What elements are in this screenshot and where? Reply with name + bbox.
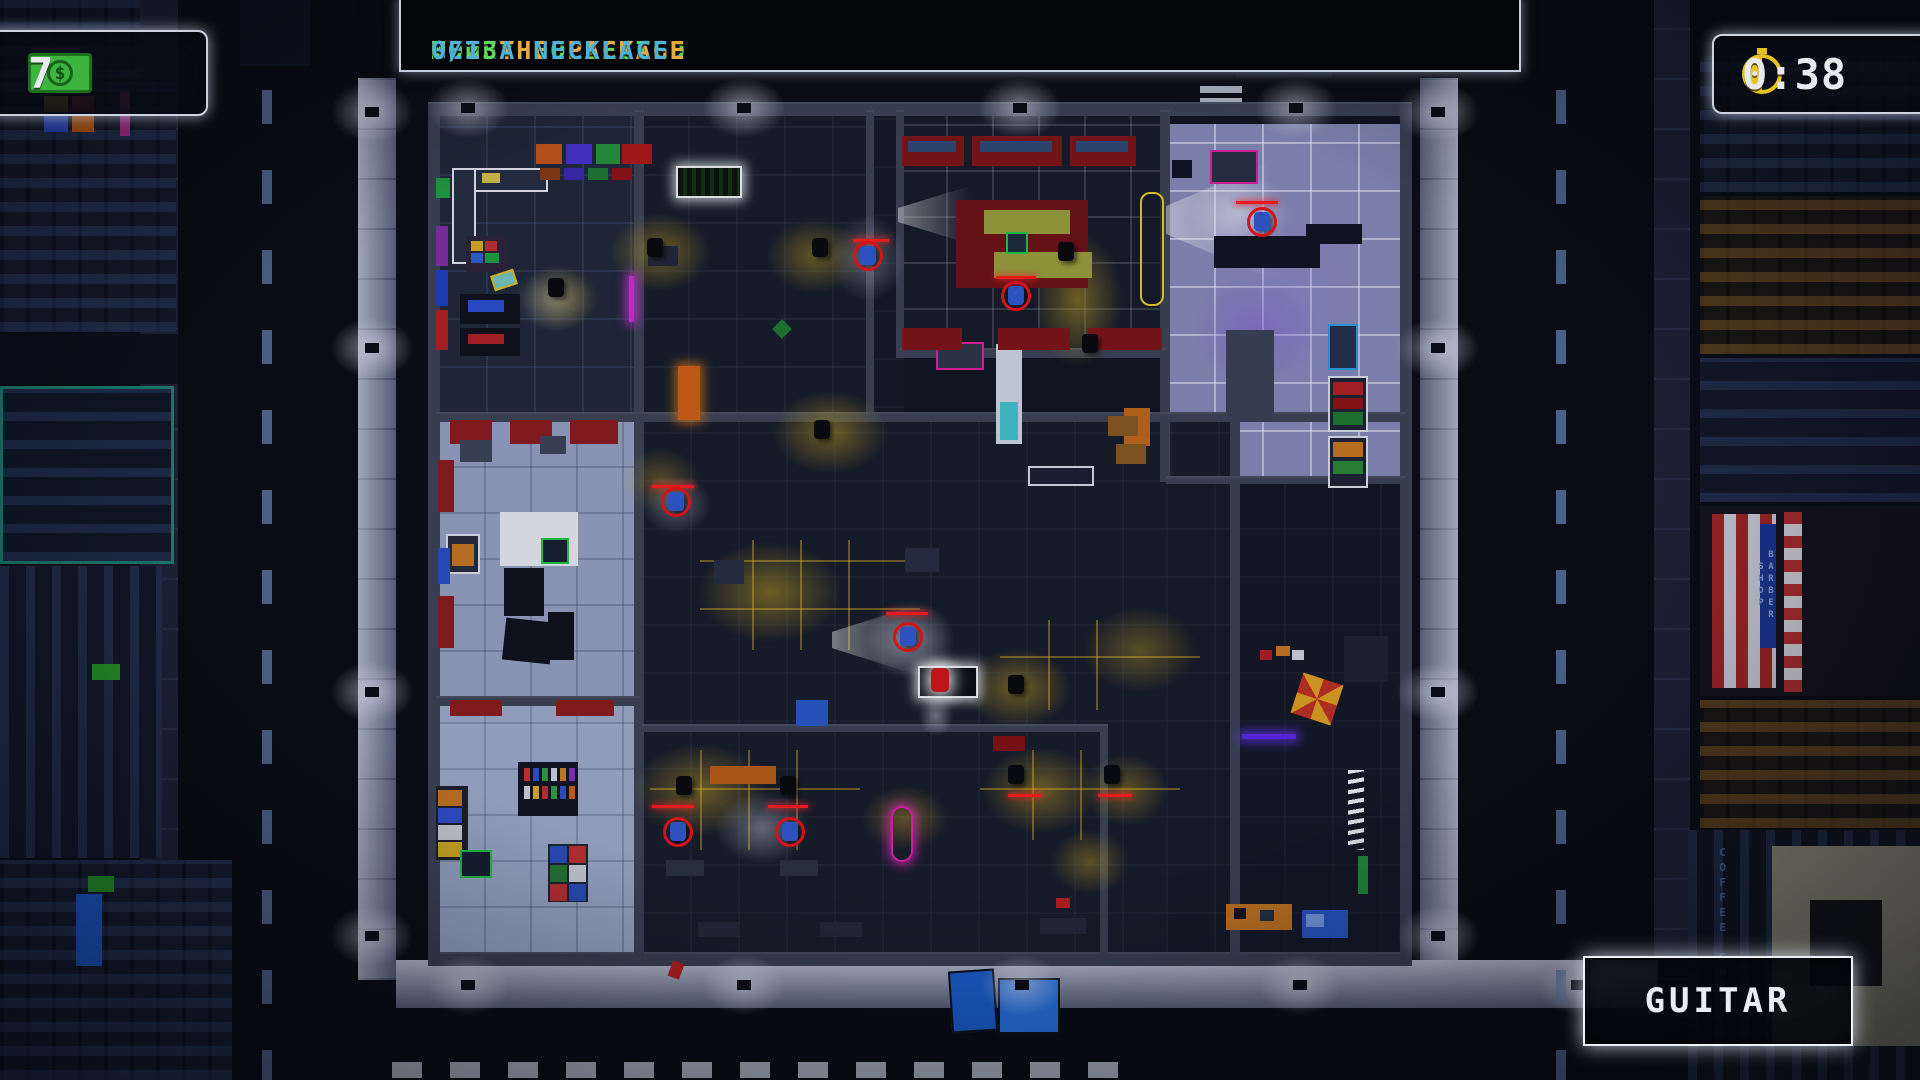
guard-alerted — [893, 622, 923, 652]
neon-strip-h — [1242, 734, 1296, 739]
timer-value: 0:38 — [1742, 50, 1847, 99]
detection-ring — [1001, 281, 1031, 311]
street-lamp — [461, 103, 475, 113]
crate — [536, 144, 562, 164]
crate — [796, 700, 828, 726]
equipped-item-label: GUITAR — [1645, 981, 1792, 1021]
bottles — [560, 768, 566, 781]
hall-mid-right — [1166, 480, 1236, 962]
register — [541, 538, 569, 564]
wall-shelf — [436, 270, 448, 306]
bottles — [542, 786, 548, 799]
player-character[interactable] — [931, 668, 949, 692]
lit-grid-line — [1000, 656, 1200, 658]
wall-shelf — [436, 226, 448, 266]
guard — [669, 771, 699, 801]
lit-grid-line — [700, 750, 702, 850]
guard-alerted — [853, 241, 883, 271]
lit-grid-line — [700, 608, 920, 610]
arcade-screen — [485, 241, 497, 251]
objective-progress: 0/1 — [431, 36, 482, 65]
light-pool — [1035, 817, 1145, 907]
lit-grid-line — [1048, 620, 1050, 710]
desk — [502, 618, 554, 665]
counter-top — [908, 141, 956, 152]
crate — [596, 144, 620, 164]
shelf-red — [450, 700, 502, 716]
bench — [698, 922, 740, 937]
kitchen-counter — [902, 328, 962, 350]
guard-body — [1008, 765, 1024, 784]
guard-body — [812, 238, 828, 257]
shelf-red — [556, 700, 614, 716]
detection-ring — [661, 487, 691, 517]
guard-alerted — [775, 817, 805, 847]
vision-laser — [1098, 794, 1132, 797]
crate — [438, 842, 462, 857]
fixture — [460, 440, 492, 462]
crate-cell — [569, 846, 586, 863]
lit-grid-line — [752, 540, 754, 650]
guard — [541, 273, 571, 303]
crate — [588, 168, 608, 180]
scatter — [1260, 650, 1272, 660]
pallet — [438, 548, 450, 584]
street-lamp — [1431, 343, 1445, 353]
desk — [504, 568, 544, 616]
bottles — [542, 768, 548, 781]
shelf-red — [438, 596, 454, 648]
guard-body — [1082, 334, 1098, 353]
fixture — [540, 436, 566, 454]
wall-shelf — [436, 310, 448, 350]
kitchen-counter — [998, 328, 1070, 350]
street-lamp — [1015, 980, 1029, 990]
guard — [805, 233, 835, 263]
crate — [622, 144, 652, 164]
bench — [820, 922, 862, 937]
game-viewport[interactable]: COFFEE SHOP BARBER SHOP MONEY COLLECTED … — [0, 0, 1920, 1080]
produce — [1333, 412, 1363, 425]
bottles — [569, 786, 575, 799]
desk-screen — [468, 300, 504, 312]
guard-body — [814, 420, 830, 439]
guard — [1051, 237, 1081, 267]
shelf-red — [438, 460, 454, 512]
rope — [1348, 770, 1364, 850]
detection-ring — [853, 241, 883, 271]
bottles — [524, 768, 530, 781]
crate — [438, 808, 462, 823]
guard-body — [780, 776, 796, 795]
street-lamp — [737, 103, 751, 113]
vision-laser — [768, 805, 808, 808]
table — [1028, 466, 1094, 486]
crate-lid — [1306, 914, 1324, 927]
fridge — [1006, 232, 1028, 254]
guard — [807, 415, 837, 445]
light-pool — [1060, 590, 1220, 710]
lit-grid-line — [800, 540, 802, 650]
street-lamp — [365, 931, 379, 941]
street-lamp — [365, 687, 379, 697]
counter-top — [1076, 141, 1128, 152]
guard — [1001, 760, 1031, 790]
street-lamp — [365, 107, 379, 117]
register — [460, 850, 492, 878]
desk — [1306, 224, 1362, 244]
produce — [1333, 461, 1363, 474]
street-lamp — [737, 980, 751, 990]
barber-shop-sign: BARBER SHOP — [1760, 524, 1776, 648]
guard — [1075, 329, 1105, 359]
table — [1116, 444, 1146, 464]
bench — [780, 860, 818, 876]
cabinet — [1226, 330, 1274, 422]
table — [1108, 416, 1138, 436]
crate — [612, 168, 632, 180]
detection-ring — [1247, 207, 1277, 237]
desk — [548, 612, 574, 660]
crate-dark — [1234, 908, 1246, 919]
street-lamp — [1431, 107, 1445, 117]
money-count: 7 — [28, 49, 54, 98]
vision-laser — [996, 276, 1036, 279]
wall-shelf — [436, 178, 450, 198]
guard-body — [1104, 765, 1120, 784]
room-bar — [438, 704, 644, 954]
bench — [710, 766, 776, 784]
server — [1328, 324, 1358, 370]
guard — [773, 771, 803, 801]
crate — [438, 825, 462, 840]
bottles — [533, 768, 539, 781]
marker — [1056, 898, 1070, 908]
vision-laser — [1236, 201, 1278, 204]
bottles — [560, 786, 566, 799]
crate — [438, 790, 462, 806]
scatter — [1276, 646, 1290, 656]
box — [1172, 160, 1192, 178]
bottles — [524, 786, 530, 799]
produce — [1333, 382, 1363, 395]
bottles — [551, 768, 557, 781]
street-lamp — [461, 980, 475, 990]
neon-door — [1140, 192, 1164, 306]
crate — [564, 168, 584, 180]
street-lamp — [1431, 931, 1445, 941]
crate — [566, 144, 592, 164]
vent — [1344, 636, 1388, 682]
shelf — [993, 736, 1025, 751]
arcade-screen — [471, 241, 483, 251]
detection-ring — [775, 817, 805, 847]
vending-machine — [678, 366, 700, 420]
crate — [540, 168, 560, 180]
neon-strip — [629, 276, 634, 322]
arcade-screen — [485, 253, 499, 263]
money-panel: $ 7 — [0, 30, 208, 116]
street-lamp — [1013, 103, 1027, 113]
lit-grid-line — [1080, 750, 1082, 840]
bench — [1040, 918, 1086, 934]
timer-panel: 0:38 — [1712, 34, 1920, 114]
desk-screen — [468, 334, 504, 344]
guard-body — [1058, 242, 1074, 261]
crate-cell — [550, 846, 567, 863]
crate — [714, 560, 744, 584]
crate-cell — [550, 884, 567, 901]
freezer-inner — [1000, 402, 1018, 440]
crate-cell — [569, 865, 586, 882]
counter-items — [482, 173, 500, 183]
crate — [905, 548, 939, 572]
objectives-bar: MONEY COLLECTED 7/23 GET THE PACKAGE 0/1… — [399, 0, 1521, 72]
neon-ring — [891, 806, 913, 862]
guard-alerted — [1247, 207, 1277, 237]
lit-grid-line — [748, 750, 750, 850]
street-lamp — [1293, 980, 1307, 990]
produce — [1333, 442, 1363, 457]
guard-alerted — [663, 817, 693, 847]
wall — [1230, 420, 1240, 964]
neon-hedge-sign — [676, 166, 742, 198]
scatter — [1292, 650, 1304, 660]
light-pool — [1160, 135, 1420, 465]
crate-dark — [1260, 910, 1274, 921]
shelf-red — [570, 420, 618, 444]
bottles — [569, 768, 575, 781]
copier — [1210, 150, 1258, 184]
arcade-screen — [471, 253, 483, 263]
bottles — [533, 786, 539, 799]
display-items — [452, 544, 474, 566]
building-map — [0, 0, 1920, 1080]
street-lamp — [365, 343, 379, 353]
guard — [640, 233, 670, 263]
vision-laser — [652, 805, 694, 808]
bench — [666, 860, 704, 876]
room-storage — [1236, 484, 1406, 962]
bottles — [551, 786, 557, 799]
guard-body — [647, 238, 663, 257]
guard-body — [676, 776, 692, 795]
green-box — [1358, 856, 1368, 894]
crate-cell — [569, 884, 586, 901]
street-lamp — [1431, 687, 1445, 697]
vision-laser — [886, 612, 928, 615]
wall — [1166, 476, 1406, 484]
guard-body — [1008, 675, 1024, 694]
guard-body — [548, 278, 564, 297]
stove — [984, 210, 1070, 234]
crate-cell — [550, 865, 567, 882]
guard-alerted — [661, 487, 691, 517]
desk — [1214, 236, 1320, 268]
vision-laser — [1008, 794, 1042, 797]
detection-ring — [893, 622, 923, 652]
lit-grid-line — [1096, 620, 1098, 710]
guard — [1001, 670, 1031, 700]
street-lamp — [1289, 103, 1303, 113]
equipped-item-panel: GUITAR — [1583, 956, 1853, 1046]
guard-alerted — [1001, 281, 1031, 311]
produce — [1333, 398, 1363, 409]
guard — [1097, 760, 1127, 790]
detection-ring — [663, 817, 693, 847]
